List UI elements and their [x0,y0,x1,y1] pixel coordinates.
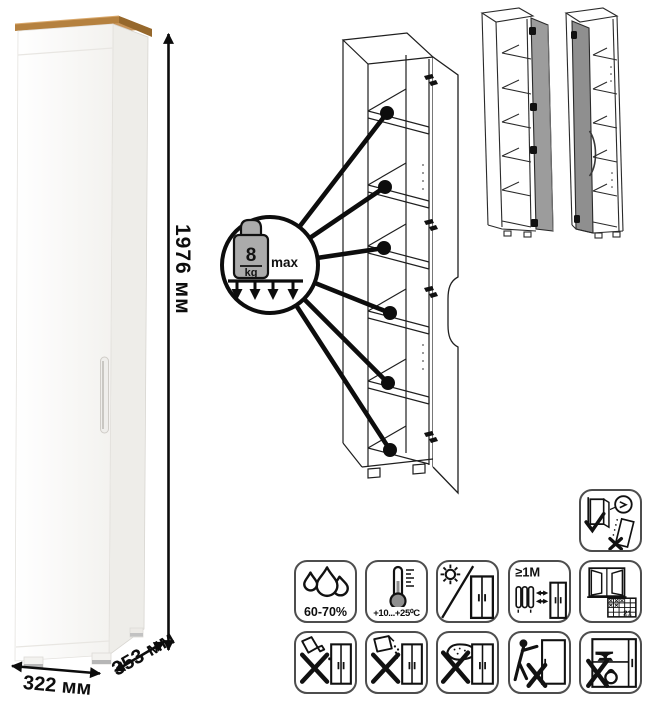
cabinet-glyph [331,644,351,683]
radiator-distance-icon: ≥1М [511,563,569,621]
no-sponge-icon [439,634,497,692]
person-dragging-icon [511,634,569,692]
load-value: 8 [246,245,257,266]
cabinet-side-panel [109,24,148,655]
prohibition-x [302,655,327,682]
load-qualifier: max [271,255,299,270]
door-variant-right-hinge [482,8,553,237]
care-icon-humidity: 60-70% [294,560,357,623]
cabinet-glyph [402,644,422,683]
overload-cabinet-icon [582,634,640,692]
calendar-date: 21 [623,608,632,617]
no-powder-box-icon [368,634,426,692]
shelf-load-drawing: 8 kg max [210,15,480,515]
cabinet-glyph [472,644,493,683]
calendar-glyph: 21 [608,598,636,617]
cabinet-door-front [15,24,113,661]
care-icon-no-aggressive-liquids [294,631,357,694]
care-icon-no-direct-sunlight [436,560,499,623]
furniture-care-sheet: 1976 мм 322 мм 353 мм [0,0,648,700]
humidity-label: 60-70% [296,605,355,619]
humidity-drops-icon [297,563,355,607]
sun-shade-icon [439,563,497,621]
kettlebell-glyph [605,670,616,683]
door-handle [101,357,109,433]
product-photo [0,0,230,700]
door-variant-left-hinge [566,8,623,238]
double-arrows [536,590,548,603]
radiator-glyph [516,587,533,613]
load-unit: kg [245,267,258,279]
cabinet-carcass [343,33,433,478]
open-window-icon: 21 [582,563,640,621]
cabinet-glyph [550,583,566,618]
care-icon-ventilation: 21 [579,560,642,623]
care-icon-do-not-drag [508,631,571,694]
care-icon-heat-distance: ≥1М [508,560,571,623]
height-label: 1976 мм [170,224,194,315]
door-variant-diagrams [475,3,648,240]
load-limit-circle: 8 kg max [222,217,318,313]
cabinet-glyph [471,576,493,617]
no-solvent-bottle-icon [297,634,355,692]
care-icon-do-not-overload [579,631,642,694]
anchor-to-wall-icon [582,492,640,550]
temperature-label: +10...+25⁰C [367,608,426,619]
distance-label: ≥1М [515,564,540,579]
shelf-dots [377,106,397,457]
prohibition-x [373,655,398,682]
cabinet-glyph [542,640,565,684]
care-icon-anchor-to-wall [579,489,642,552]
care-icon-temperature: +10...+25⁰C [365,560,428,623]
open-door [433,57,458,493]
thermometer-icon [368,563,426,607]
care-icon-no-abrasive-powders [365,631,428,694]
care-icon-no-wet-sponge [436,631,499,694]
